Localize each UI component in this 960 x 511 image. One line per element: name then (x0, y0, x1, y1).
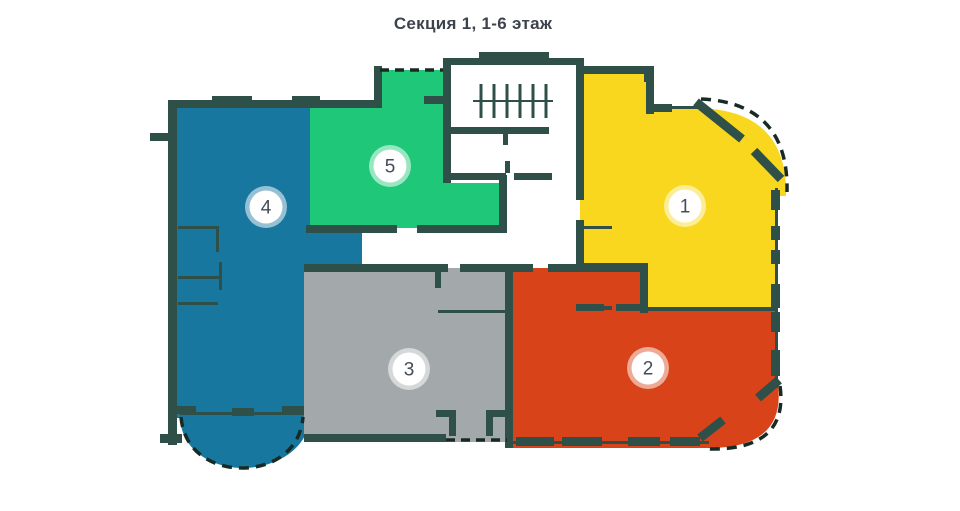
unit-5-region[interactable] (310, 70, 505, 228)
svg-text:1: 1 (680, 197, 691, 218)
unit-2-badge[interactable]: 2 (627, 347, 669, 389)
unit-4-badge[interactable]: 4 (245, 186, 287, 228)
svg-text:3: 3 (404, 360, 415, 381)
floor-plan: 1 2 3 4 5 (0, 0, 960, 511)
svg-text:4: 4 (261, 198, 272, 219)
svg-text:2: 2 (643, 359, 654, 380)
unit-5-badge[interactable]: 5 (369, 145, 411, 187)
unit-3-badge[interactable]: 3 (388, 348, 430, 390)
floor-plan-canvas: Секция 1, 1-6 этаж (0, 0, 960, 511)
unit-1-badge[interactable]: 1 (664, 185, 706, 227)
staircase-icon (473, 84, 553, 118)
svg-text:5: 5 (385, 157, 396, 178)
